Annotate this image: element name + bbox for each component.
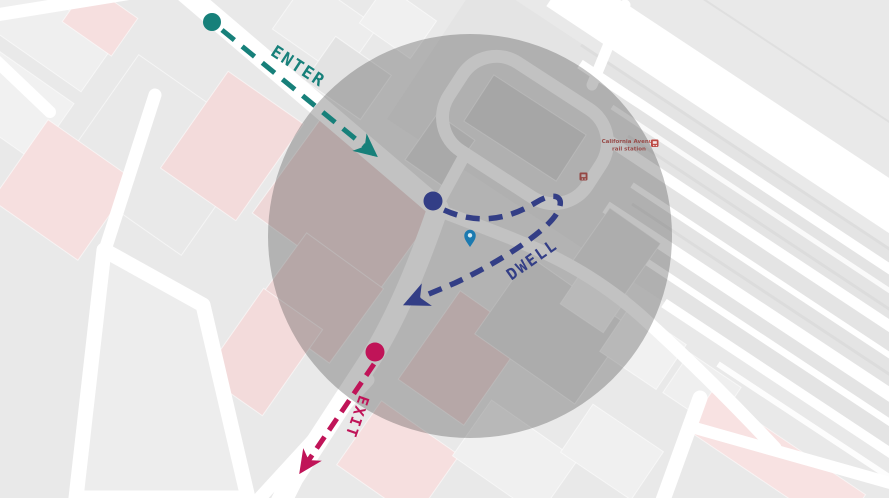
movement-map: California Avenue rail station ENTER: [0, 0, 889, 498]
journey-start-dot: [203, 13, 221, 31]
exit-node-dot: [366, 343, 385, 362]
map-canvas[interactable]: California Avenue rail station: [0, 0, 889, 498]
rail-station-icon: [651, 140, 659, 148]
dwell-node-dot: [424, 192, 443, 211]
